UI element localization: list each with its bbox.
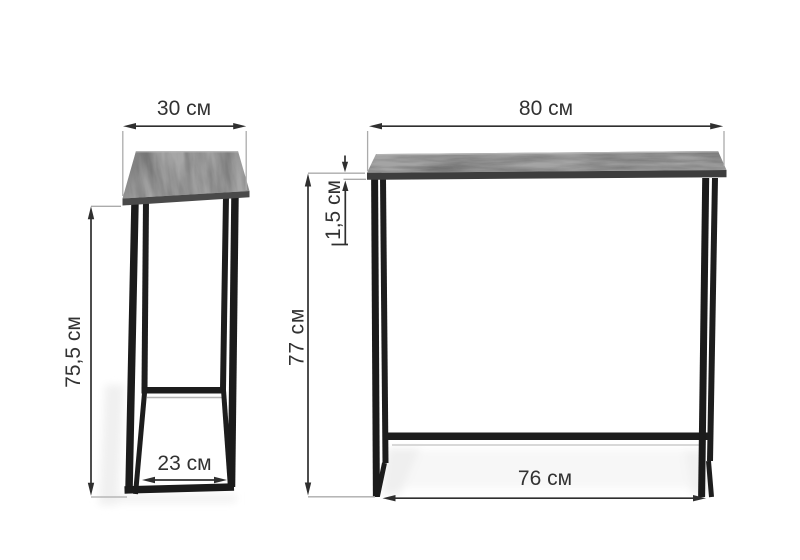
svg-text:1,5 см: 1,5 см <box>322 180 345 240</box>
svg-text:75,5 см: 75,5 см <box>62 316 85 388</box>
svg-text:80 см: 80 см <box>519 97 573 120</box>
svg-text:23 см: 23 см <box>157 452 211 475</box>
svg-text:77 см: 77 см <box>286 308 309 366</box>
svg-text:76 см: 76 см <box>518 467 572 490</box>
svg-text:30 см: 30 см <box>157 97 211 120</box>
